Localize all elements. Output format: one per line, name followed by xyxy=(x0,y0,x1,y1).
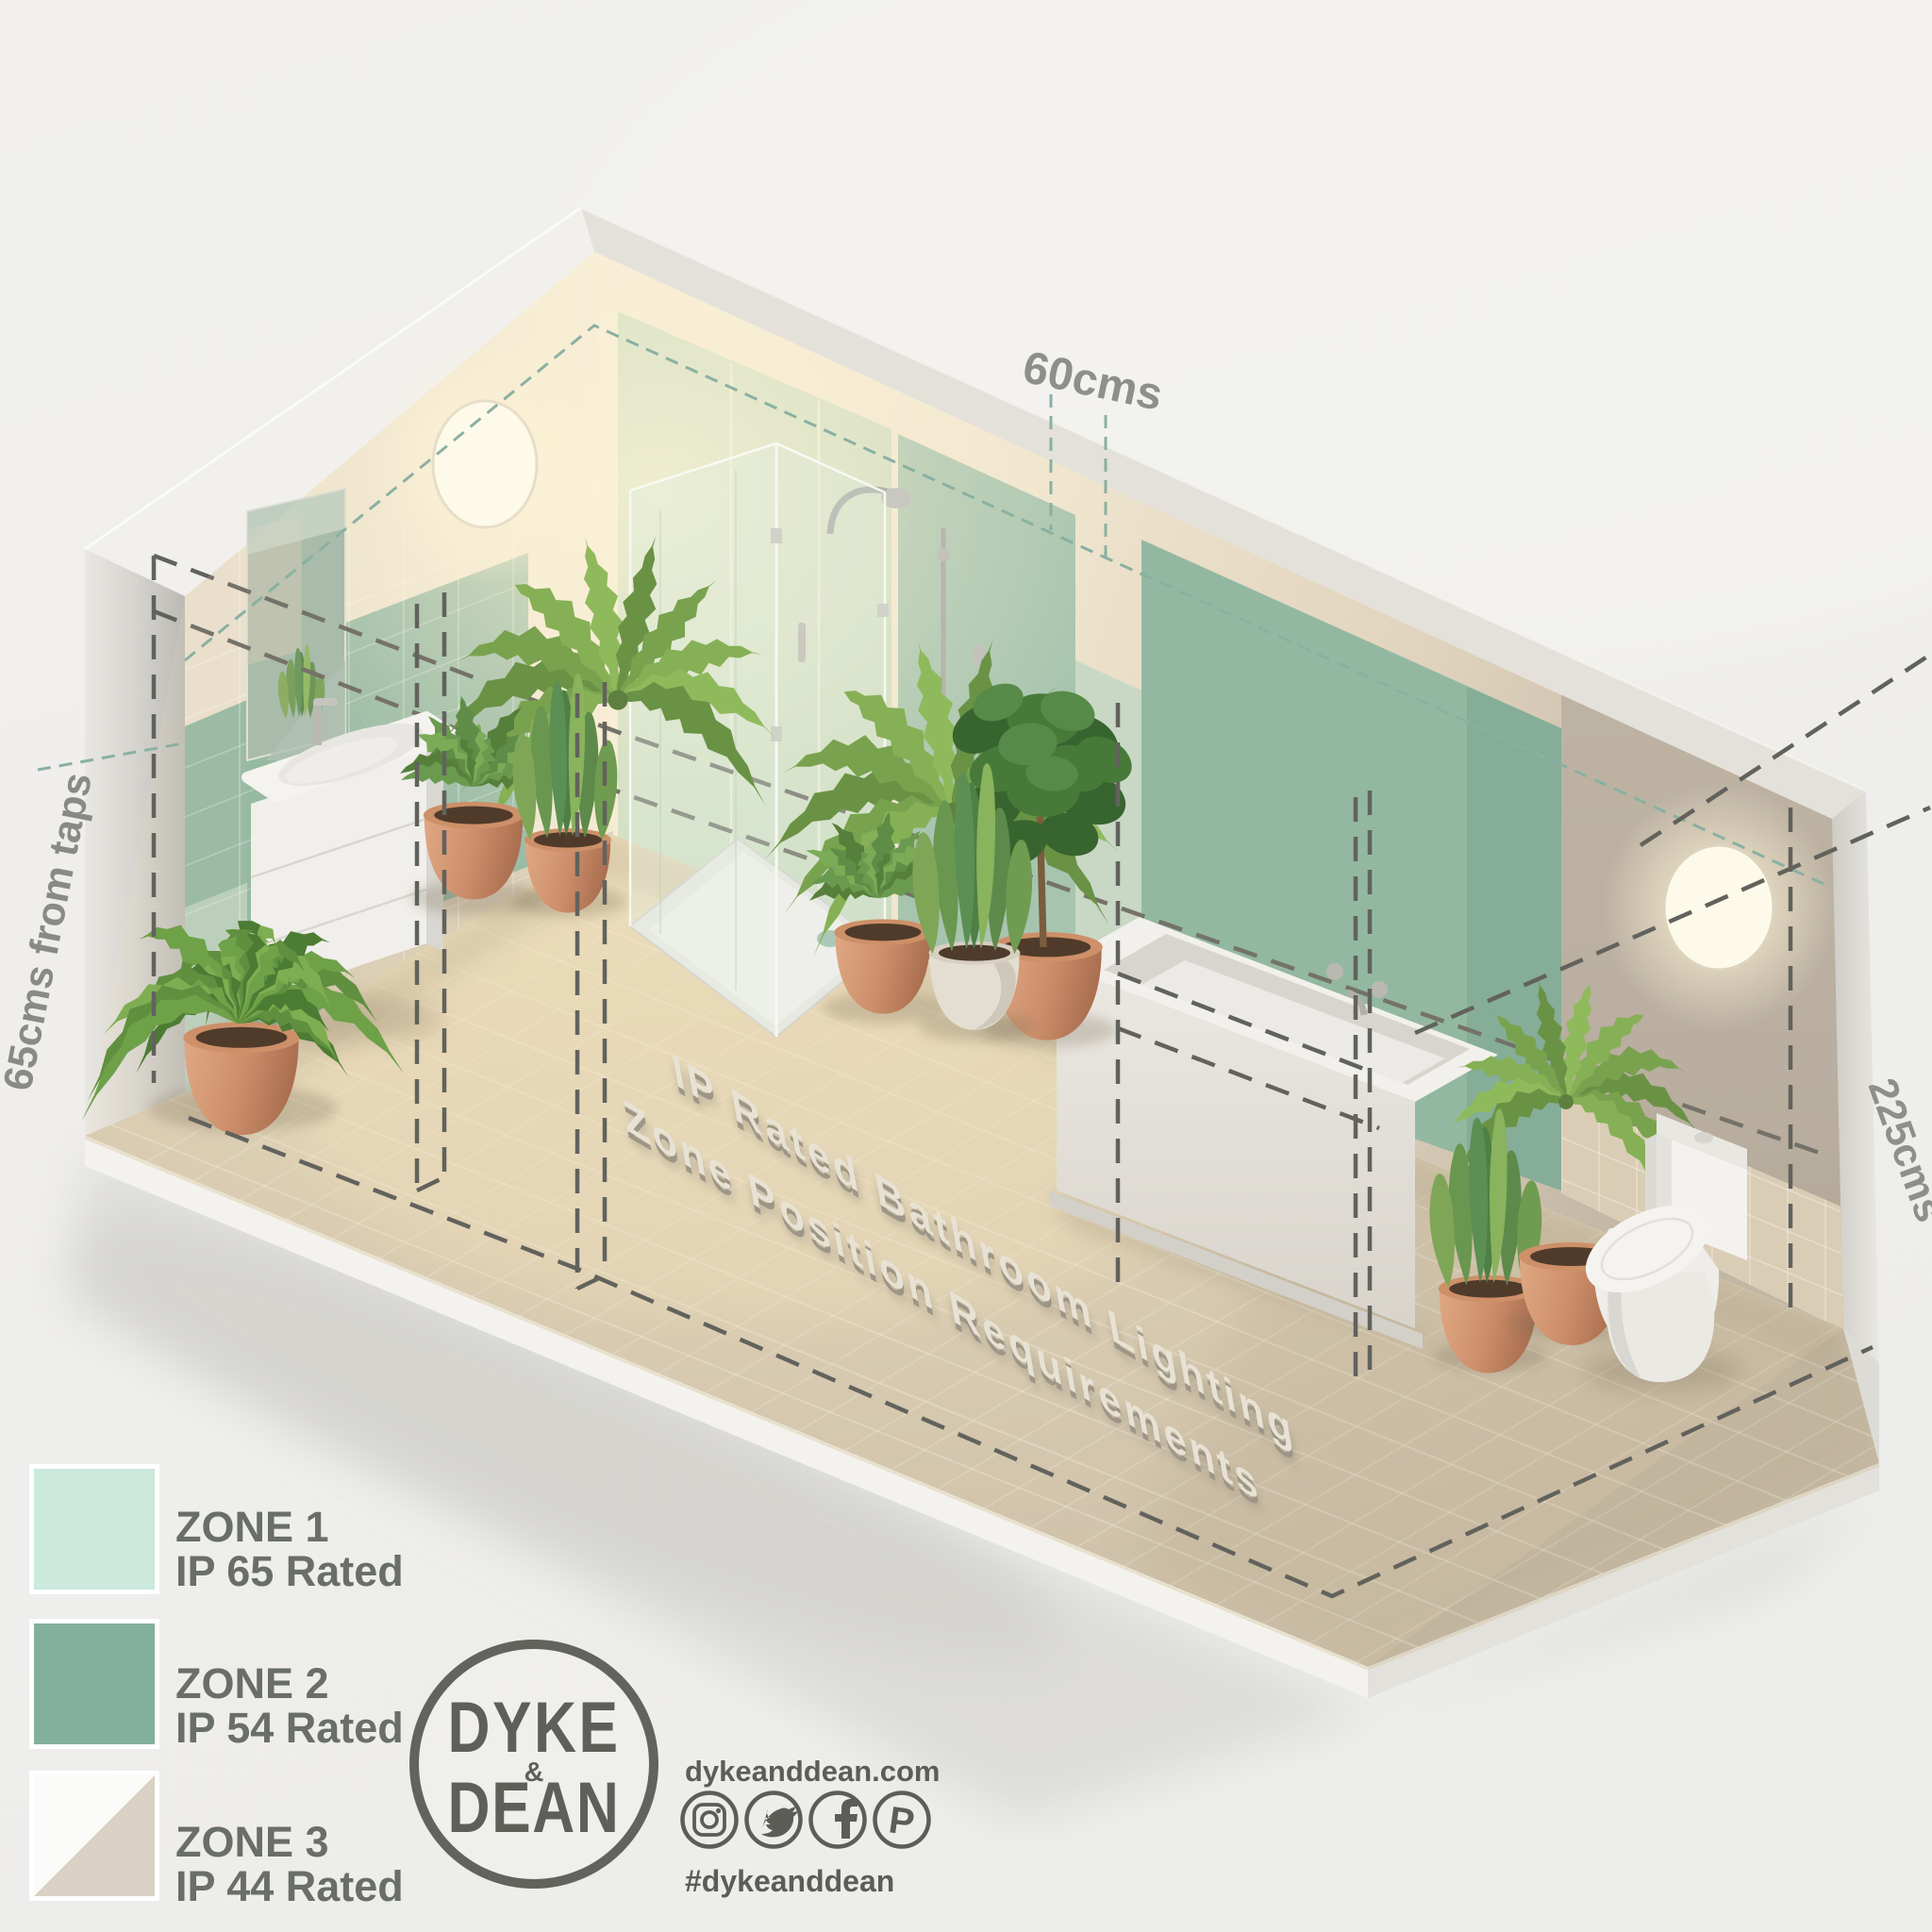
svg-text:ZONE 1: ZONE 1 xyxy=(175,1503,329,1551)
svg-text:#dykeanddean: #dykeanddean xyxy=(685,1864,894,1898)
svg-text:DEAN: DEAN xyxy=(447,1767,620,1847)
svg-text:ZONE 2: ZONE 2 xyxy=(175,1659,329,1707)
svg-text:IP 54 Rated: IP 54 Rated xyxy=(175,1704,404,1752)
svg-text:dykeanddean.com: dykeanddean.com xyxy=(685,1755,940,1788)
svg-text:IP 65 Rated: IP 65 Rated xyxy=(175,1547,404,1595)
svg-text:ZONE 3: ZONE 3 xyxy=(175,1818,329,1866)
svg-text:IP 44 Rated: IP 44 Rated xyxy=(175,1862,404,1910)
svg-text:DYKE: DYKE xyxy=(448,1687,621,1767)
